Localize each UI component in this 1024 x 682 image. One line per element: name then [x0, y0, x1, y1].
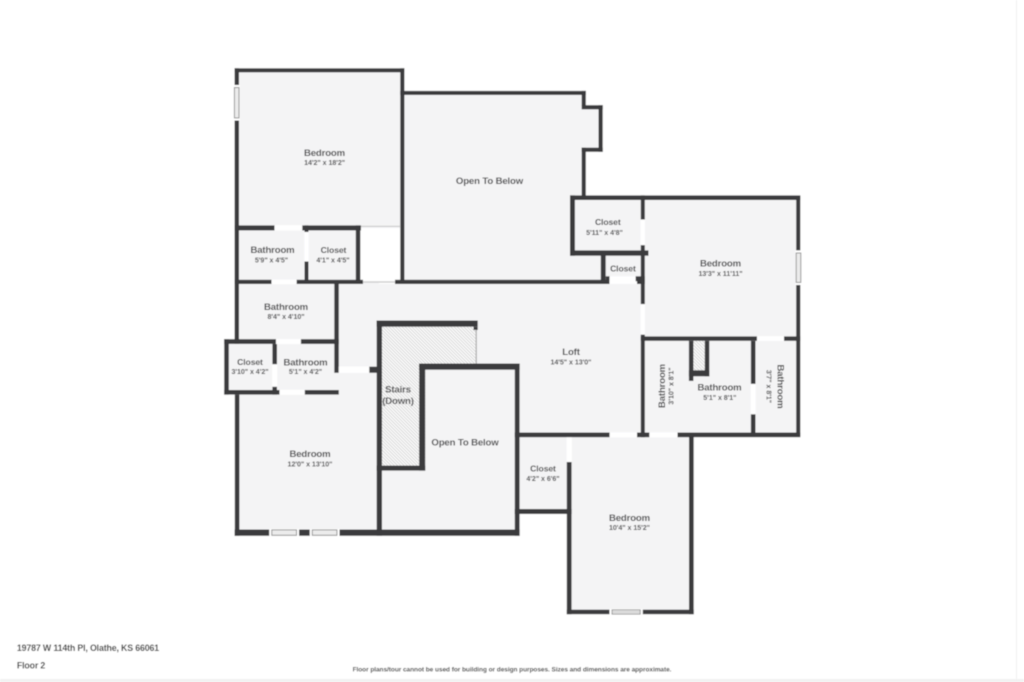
svg-text:5'1" x 8'1": 5'1" x 8'1"	[703, 394, 736, 402]
svg-text:Bedroom: Bedroom	[304, 148, 345, 159]
svg-text:10'4" x 15'2": 10'4" x 15'2"	[609, 524, 650, 532]
svg-text:Open To Below: Open To Below	[431, 438, 499, 449]
svg-text:Closet: Closet	[610, 263, 636, 273]
svg-text:12'0" x 13'10": 12'0" x 13'10"	[288, 461, 333, 469]
svg-text:5'1" x 4'2": 5'1" x 4'2"	[289, 368, 322, 376]
svg-text:Bathroom: Bathroom	[264, 302, 308, 313]
svg-text:Bathroom: Bathroom	[697, 382, 741, 393]
svg-text:Floor plans/tour cannot be use: Floor plans/tour cannot be used for buil…	[353, 666, 672, 673]
svg-text:3'10" x 4'2": 3'10" x 4'2"	[231, 368, 268, 376]
svg-text:Closet: Closet	[321, 245, 347, 255]
svg-text:5'9" x 4'5": 5'9" x 4'5"	[255, 256, 288, 264]
svg-text:Closet: Closet	[237, 357, 263, 367]
svg-text:Bedroom: Bedroom	[700, 259, 741, 270]
svg-text:Loft: Loft	[562, 347, 580, 358]
svg-text:19787 W 114th Pl, Olathe, KS 6: 19787 W 114th Pl, Olathe, KS 66061	[17, 643, 159, 653]
svg-text:Floor 2: Floor 2	[17, 660, 46, 670]
svg-text:Open To Below: Open To Below	[456, 176, 524, 187]
svg-text:Bathroom: Bathroom	[657, 364, 668, 408]
svg-text:Bathroom: Bathroom	[283, 358, 327, 369]
svg-text:4'2" x 6'6": 4'2" x 6'6"	[526, 475, 559, 483]
svg-text:5'11" x 4'8": 5'11" x 4'8"	[586, 229, 623, 237]
svg-text:Bedroom: Bedroom	[609, 513, 650, 524]
svg-text:Closet: Closet	[530, 464, 556, 474]
svg-text:8'4" x 4'10": 8'4" x 4'10"	[267, 313, 304, 321]
svg-text:14'2" x 18'2": 14'2" x 18'2"	[304, 159, 345, 167]
svg-text:4'1" x 4'5": 4'1" x 4'5"	[316, 256, 349, 264]
svg-text:Bathroom: Bathroom	[250, 245, 294, 256]
svg-text:3'7" x 8'1": 3'7" x 8'1"	[765, 370, 773, 403]
svg-text:14'5" x 13'0": 14'5" x 13'0"	[550, 359, 591, 367]
svg-text:Closet: Closet	[595, 217, 621, 227]
svg-text:Bedroom: Bedroom	[289, 449, 330, 460]
svg-text:Stairs: Stairs	[385, 385, 411, 396]
svg-text:(Down): (Down)	[382, 396, 414, 407]
svg-text:3'10" x 8'1": 3'10" x 8'1"	[668, 367, 676, 404]
svg-text:13'3" x 11'11": 13'3" x 11'11"	[698, 270, 742, 278]
svg-text:Bathroom: Bathroom	[775, 364, 786, 408]
